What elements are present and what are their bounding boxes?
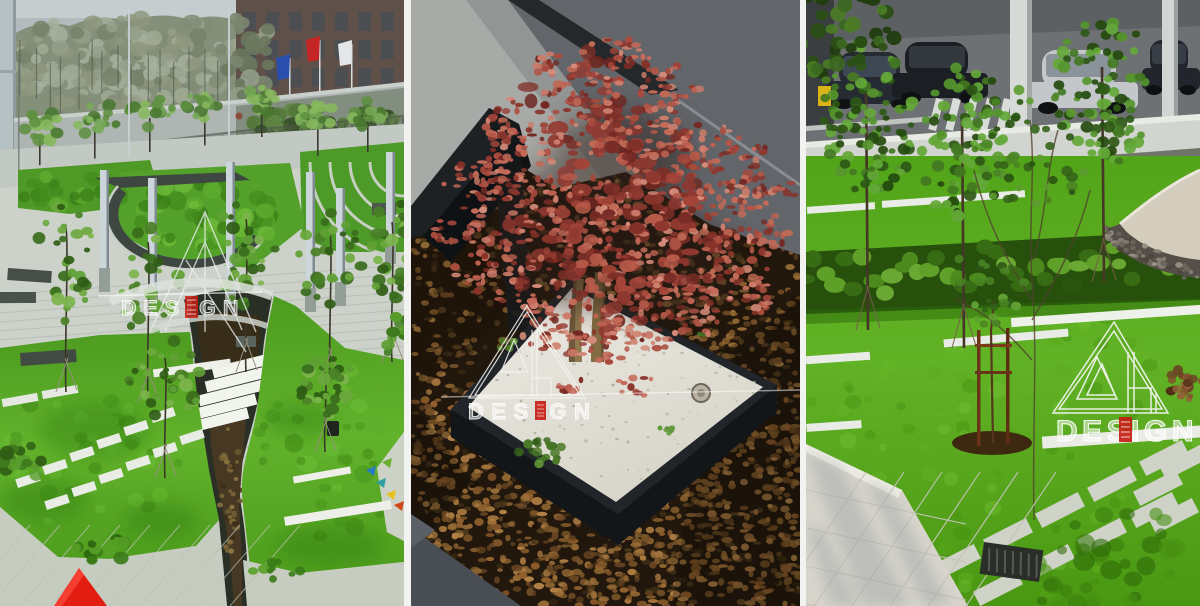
svg-text:DESIGN: DESIGN (121, 296, 245, 320)
